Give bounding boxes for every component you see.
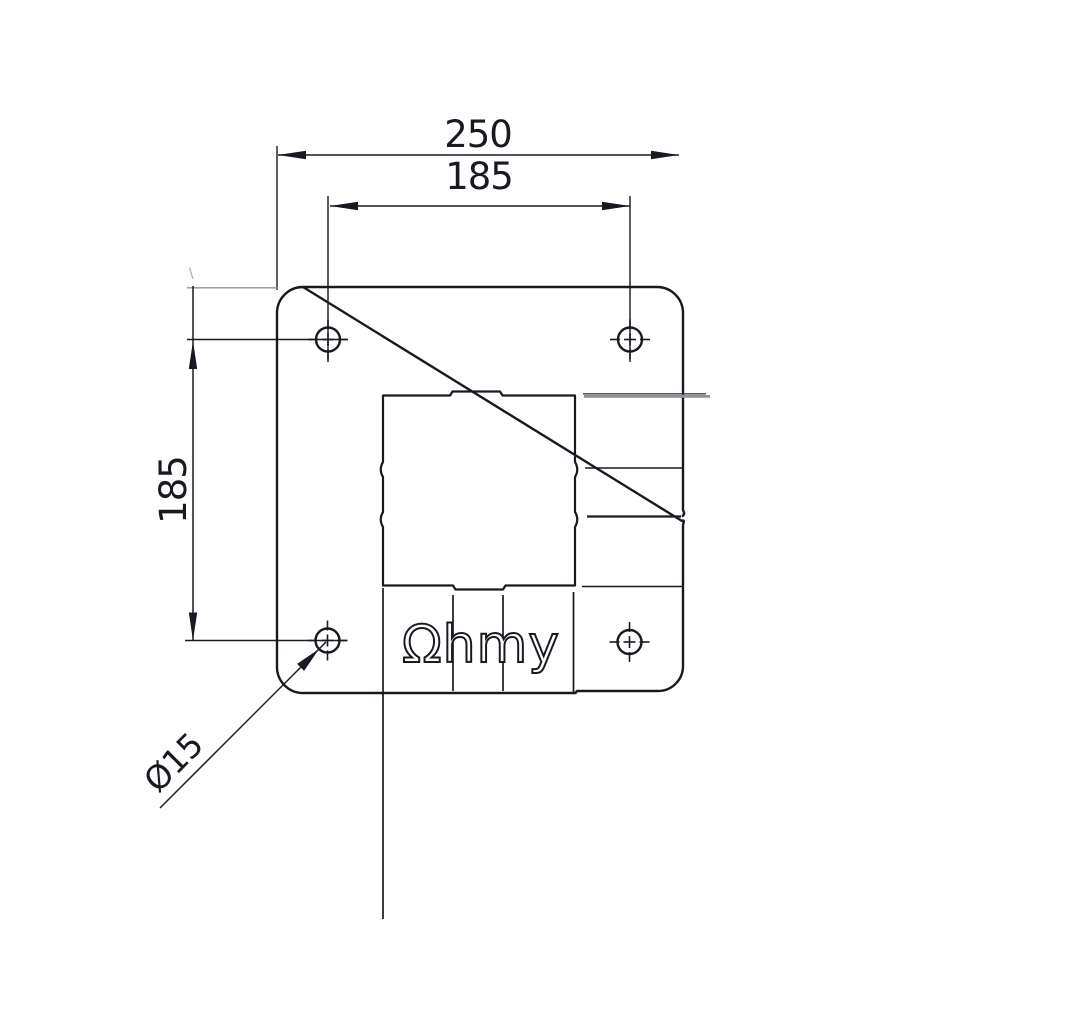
dimension-overall-width: 250 <box>277 113 679 290</box>
dimension-hole-pitch-vertical: 185 <box>152 286 347 641</box>
mounting-hole-bottom-right <box>610 622 650 662</box>
arrowhead-left <box>330 202 358 210</box>
arrowhead-top <box>189 341 197 369</box>
technical-drawing-canvas: 250 185 185 Ø15 Ωhmy <box>0 0 1070 1034</box>
hole-diameter-callout: Ø15 <box>136 642 326 808</box>
stray-mark <box>190 268 194 280</box>
dimension-value: 250 <box>444 113 512 156</box>
drawing-page: 250 185 185 Ø15 Ωhmy <box>0 0 1070 1034</box>
dimension-value: 185 <box>152 456 195 524</box>
center-cutout-outline <box>381 392 578 590</box>
folded-edge-line <box>583 394 710 397</box>
hole-diameter-label: Ø15 <box>136 725 211 800</box>
dimension-value: 185 <box>445 155 513 198</box>
logo-text: Ωhmy <box>402 615 560 675</box>
plate <box>277 287 710 919</box>
arrowhead-left <box>278 151 306 159</box>
arrowhead-right <box>651 151 679 159</box>
arrowhead-bottom <box>189 613 197 641</box>
arrowhead-right <box>602 202 630 210</box>
